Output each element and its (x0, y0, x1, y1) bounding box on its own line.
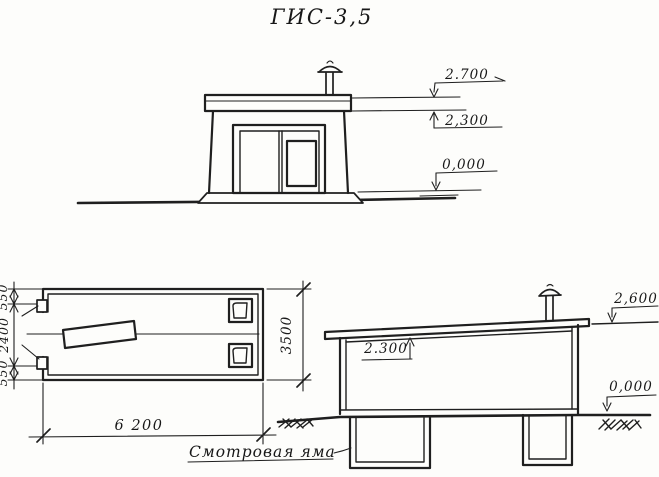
drawing-sheet: ГИС-3,5 2.700 (0, 0, 659, 477)
section-mark-ground: 0,000 (603, 379, 656, 411)
pit-label-text: Смотровая яма (189, 443, 336, 461)
section-ground-line (278, 415, 650, 422)
level-line-roof (352, 97, 460, 98)
dim-left-top-value: 550 (0, 284, 10, 311)
chimney-icon (318, 61, 342, 95)
inspection-pit-left (350, 417, 430, 468)
elevation-mark-ground-value: 0,000 (442, 157, 486, 173)
plan-left-dimension-chain: 550 2400 550 (0, 282, 43, 389)
section-floor-line (340, 409, 578, 410)
level-line-ceiling (352, 110, 466, 111)
section-mark-ceiling-value: 2.300 (363, 341, 408, 357)
pit-label: Смотровая яма (188, 443, 351, 462)
jamb-leader-top (22, 306, 38, 316)
dim-left-middle-value: 2400 (0, 317, 11, 354)
elevation-mark-roof-top-value: 2.700 (444, 67, 489, 83)
front-elevation-view: 2.700 2,300 0,000 (78, 61, 505, 203)
plan-right-dimension: 3500 (267, 281, 311, 391)
level-line-zero-under (420, 195, 458, 196)
plinth (198, 193, 363, 203)
section-mark-roof-value: 2,600 (613, 291, 658, 307)
section-mark-ceiling: 2.300 (362, 338, 414, 360)
jamb-leader-bottom (22, 345, 39, 359)
ground-hatch-left (279, 419, 313, 428)
left-wall (209, 111, 213, 193)
dim-right-depth-value: 3500 (279, 316, 295, 354)
technical-drawing: ГИС-3,5 2.700 (0, 0, 659, 477)
plan-window-top (229, 299, 252, 322)
plan-bench (63, 321, 136, 348)
page-title: ГИС-3,5 (270, 5, 374, 29)
elevation-mark-ceiling: 2,300 (430, 112, 502, 129)
plan-view: 550 2400 550 6 200 3500 (0, 281, 311, 444)
inspection-pit-right (523, 415, 572, 465)
section-mark-roof: 2,600 (608, 291, 658, 322)
level-line-zero (358, 190, 481, 192)
door (233, 125, 325, 193)
plan-bottom-dimension: 6 200 (29, 383, 276, 444)
plan-window-bottom (229, 344, 252, 367)
pit-label-leader (334, 448, 351, 453)
right-wall (344, 111, 348, 193)
section-mark-ground-value: 0,000 (609, 379, 653, 395)
dim-bottom-width-value: 6 200 (114, 418, 163, 434)
door-window (287, 141, 316, 186)
dim-left-bottom-value: 550 (0, 360, 10, 387)
roof-fascia (205, 95, 351, 111)
elevation-mark-ceiling-value: 2,300 (444, 113, 489, 129)
ground-hatch-right (599, 419, 641, 430)
section-roof-level-line (592, 322, 658, 324)
elevation-mark-roof-top: 2.700 (430, 67, 505, 97)
section-chimney-icon (539, 285, 561, 322)
elevation-mark-ground: 0,000 (432, 157, 497, 190)
